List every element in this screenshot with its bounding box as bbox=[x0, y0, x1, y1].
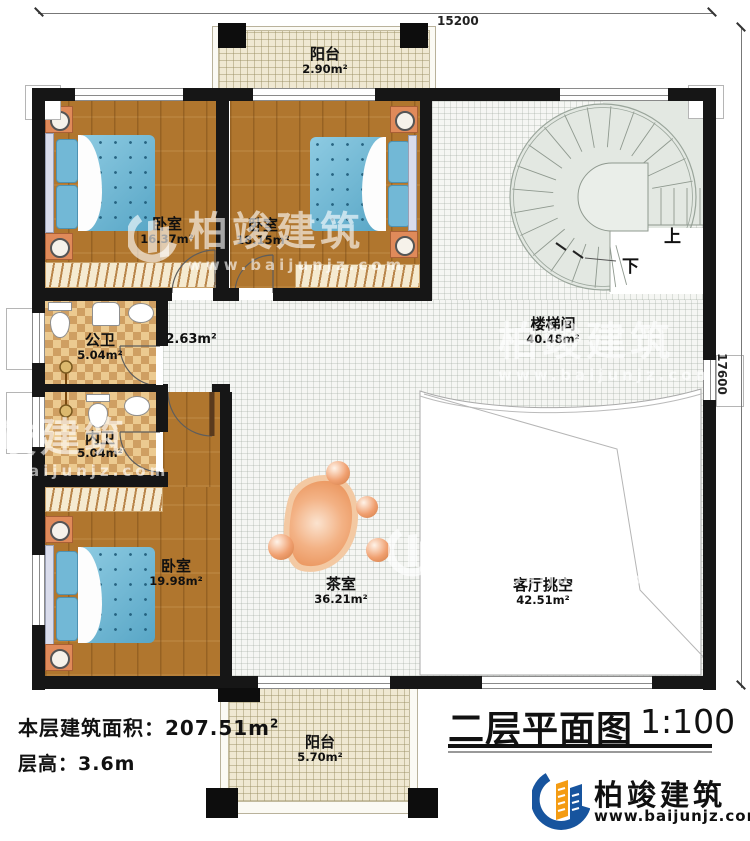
title-underline-thin bbox=[448, 751, 712, 753]
window bbox=[75, 88, 183, 101]
interior-wall bbox=[216, 100, 229, 288]
balcony-sliding-door bbox=[253, 88, 375, 101]
floor-area-note: 本层建筑面积：207.51m2 bbox=[18, 712, 279, 741]
floor-height-note: 层高：3.6m bbox=[18, 749, 135, 776]
room-label-tea-room: 茶室 36.21m² bbox=[314, 576, 367, 606]
window bbox=[32, 397, 45, 447]
exterior-wall bbox=[32, 447, 45, 555]
floor-plan-canvas: 阳台 2.90m² 卧室 16.37m² 卧室 18.15m² 楼梯间 40.4… bbox=[0, 0, 750, 841]
interior-wall bbox=[220, 392, 232, 676]
window-sill-box bbox=[6, 308, 34, 370]
top-dimension-line bbox=[38, 13, 713, 14]
window bbox=[32, 555, 45, 625]
room-label-private-bath: 内卫 5.04m² bbox=[77, 430, 122, 460]
right-dimension-value: 17600 bbox=[715, 344, 729, 404]
room-label-bedroom3: 卧室 19.98m² bbox=[149, 558, 202, 588]
interior-wall bbox=[213, 288, 239, 301]
column bbox=[408, 788, 438, 818]
interior-wall bbox=[212, 384, 230, 392]
room-label-bedroom1: 卧室 16.37m² bbox=[140, 216, 193, 246]
exterior-wall bbox=[390, 676, 482, 689]
right-dimension-line bbox=[741, 28, 742, 688]
window bbox=[482, 676, 652, 689]
stair-up-label: 上 bbox=[664, 222, 681, 247]
interior-wall bbox=[45, 288, 172, 301]
wall-block bbox=[218, 688, 260, 702]
room-label-top-balcony: 阳台 2.90m² bbox=[302, 46, 347, 76]
room-label-stairwell: 楼梯间 40.48m² bbox=[526, 316, 579, 346]
column bbox=[400, 23, 428, 48]
room-label-bedroom2: 卧室 18.15m² bbox=[236, 217, 289, 247]
interior-wall bbox=[420, 100, 432, 288]
room-label-bottom-balcony: 阳台 5.70m² bbox=[297, 734, 342, 764]
exterior-wall bbox=[703, 400, 716, 690]
interior-wall bbox=[156, 385, 168, 432]
interior-wall bbox=[45, 475, 163, 487]
brand-logo-icon bbox=[532, 770, 590, 832]
exterior-wall bbox=[375, 88, 560, 101]
room-label-public-bath: 公卫 5.04m² bbox=[77, 332, 122, 362]
room-label-living-void: 客厅挑空 42.51m² bbox=[513, 577, 573, 607]
title-underline-thick bbox=[448, 744, 712, 748]
exterior-wall bbox=[703, 88, 716, 360]
column bbox=[206, 788, 238, 818]
interior-wall bbox=[273, 288, 432, 301]
balcony-sliding-door bbox=[258, 676, 390, 689]
interior-wall bbox=[45, 384, 156, 392]
stair-down-label: 下 bbox=[622, 252, 639, 277]
room-label-corridor: 2.63m² bbox=[165, 333, 216, 348]
interior-wall bbox=[163, 384, 168, 392]
drawing-scale: 1:100 bbox=[640, 702, 735, 741]
exterior-wall bbox=[32, 88, 45, 313]
exterior-wall bbox=[652, 676, 716, 689]
window bbox=[32, 313, 45, 363]
brand-url: www.baijunjz.com bbox=[594, 807, 750, 825]
window-sill-box bbox=[6, 392, 34, 454]
top-dimension-value: 15200 bbox=[437, 14, 479, 28]
exterior-wall bbox=[32, 363, 45, 397]
column bbox=[218, 23, 246, 48]
window bbox=[560, 88, 668, 101]
